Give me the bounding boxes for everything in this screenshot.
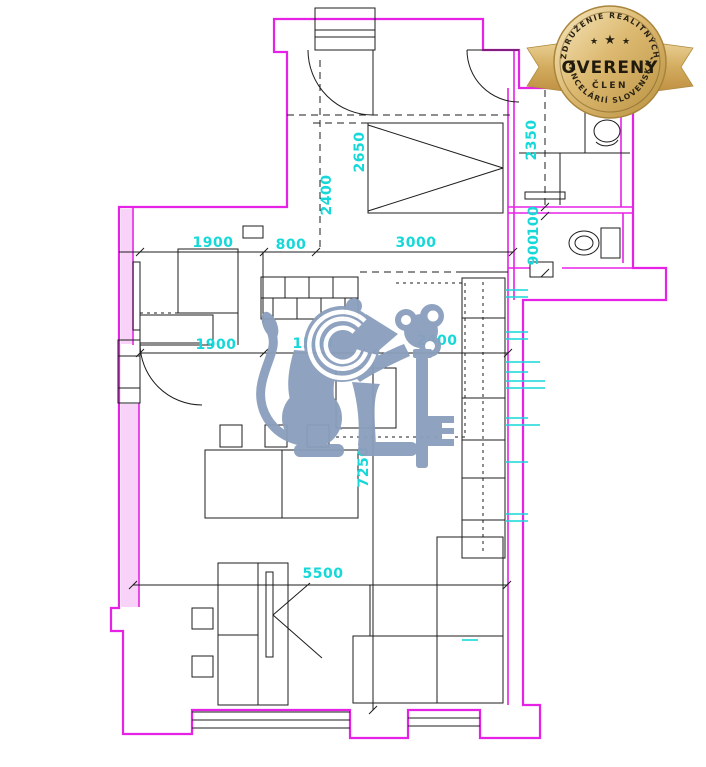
floor-plan: 1900 800 3000 2400 2650 2350 100 900 190… bbox=[111, 8, 666, 738]
overeny-badge: ZDRUŽENIE REALITNÝCH KANCELÁRIÍ SLOVENSK… bbox=[527, 6, 693, 118]
chair bbox=[192, 608, 213, 629]
floorplan-image: 1900 800 3000 2400 2650 2350 100 900 190… bbox=[0, 0, 706, 767]
dim-label: 800 bbox=[276, 237, 307, 253]
sofa-section bbox=[353, 636, 503, 703]
dim-label: 2650 bbox=[352, 132, 368, 173]
dim-label: 900 bbox=[526, 235, 542, 266]
left-wall-window-lower bbox=[121, 404, 139, 607]
bath-shelf bbox=[525, 192, 565, 199]
chair bbox=[220, 425, 242, 447]
dim-label: 3000 bbox=[396, 235, 437, 251]
entry-door-arc bbox=[467, 50, 519, 102]
dim-label: 5500 bbox=[303, 566, 344, 582]
left-wall-window-upper bbox=[121, 209, 132, 344]
dim-label: 100 bbox=[526, 206, 542, 237]
lion-front-leg bbox=[352, 382, 380, 446]
badge-subtitle: ČLEN bbox=[592, 79, 628, 91]
star-icon: ★ bbox=[590, 37, 598, 47]
dim-label: 2350 bbox=[524, 120, 540, 161]
watermark-lion-key-logo bbox=[258, 298, 454, 468]
washbasin bbox=[594, 120, 620, 142]
floor-plan-canvas: 1900 800 3000 2400 2650 2350 100 900 190… bbox=[0, 0, 706, 767]
lion-rear-paw bbox=[294, 444, 344, 457]
kitchen-counter-edge bbox=[133, 262, 140, 330]
dim-label: 1900 bbox=[196, 337, 237, 353]
kitchen-cabinet bbox=[178, 249, 238, 313]
living-door-arc bbox=[140, 343, 202, 405]
wardrobe bbox=[368, 123, 503, 213]
tv-cabinet bbox=[218, 563, 288, 705]
door-jamb bbox=[118, 340, 140, 403]
key-bit bbox=[428, 416, 454, 446]
star-icon: ★ bbox=[622, 37, 630, 47]
key-stem bbox=[416, 356, 428, 468]
badge-title: OVERENÝ bbox=[561, 56, 658, 78]
sofa-section bbox=[437, 537, 503, 585]
lion-front-paw bbox=[358, 442, 418, 456]
radiator bbox=[315, 8, 375, 50]
interior-walls bbox=[133, 50, 633, 705]
bottom-windows bbox=[192, 712, 480, 728]
toilet-bowl bbox=[569, 231, 599, 255]
wall-outline bbox=[111, 19, 666, 738]
chair bbox=[192, 656, 213, 677]
dim-label: 2400 bbox=[319, 175, 335, 216]
toilet-tank bbox=[601, 228, 620, 258]
star-icon: ★ bbox=[604, 33, 616, 48]
dim-label: 1900 bbox=[193, 235, 234, 251]
door-swing-arc bbox=[308, 50, 373, 115]
